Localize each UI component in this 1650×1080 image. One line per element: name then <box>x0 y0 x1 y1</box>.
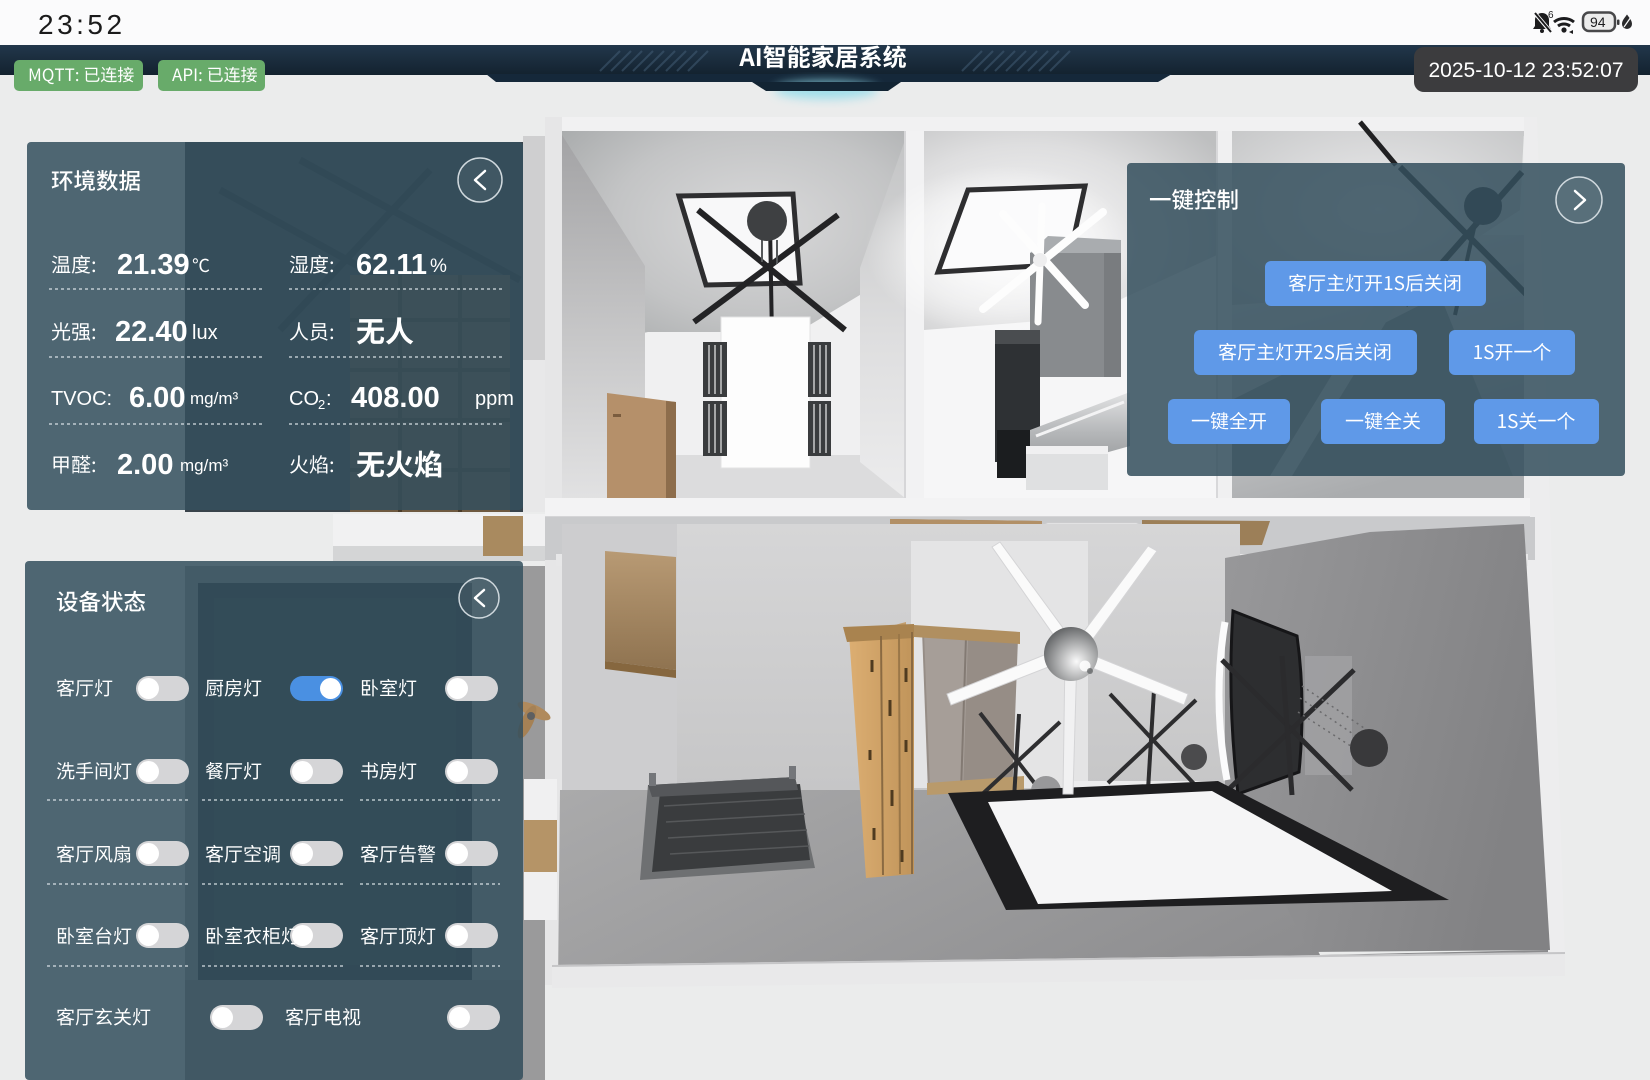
svg-text::: : <box>326 388 332 410</box>
svg-text:23:52: 23:52 <box>38 9 126 40</box>
svg-text:2025-10-12 23:52:07: 2025-10-12 23:52:07 <box>1429 59 1624 82</box>
svg-text:21.39: 21.39 <box>117 249 190 281</box>
svg-text:2.00: 2.00 <box>117 449 173 481</box>
svg-text:mg/m³: mg/m³ <box>180 456 229 475</box>
svg-text:ppm: ppm <box>475 388 514 410</box>
svg-text:%: % <box>430 256 447 277</box>
svg-text:6.00: 6.00 <box>129 382 185 414</box>
svg-text:94: 94 <box>1590 14 1606 30</box>
svg-text:62.11: 62.11 <box>356 249 427 281</box>
svg-text:6: 6 <box>1548 10 1554 21</box>
svg-text:408.00: 408.00 <box>351 382 440 414</box>
svg-text:lux: lux <box>192 322 218 344</box>
svg-text:TVOC:: TVOC: <box>51 388 112 410</box>
svg-text:mg/m³: mg/m³ <box>190 389 239 408</box>
svg-text:22.40: 22.40 <box>115 316 188 348</box>
svg-text:CO: CO <box>289 388 319 410</box>
svg-text:2: 2 <box>318 397 325 412</box>
